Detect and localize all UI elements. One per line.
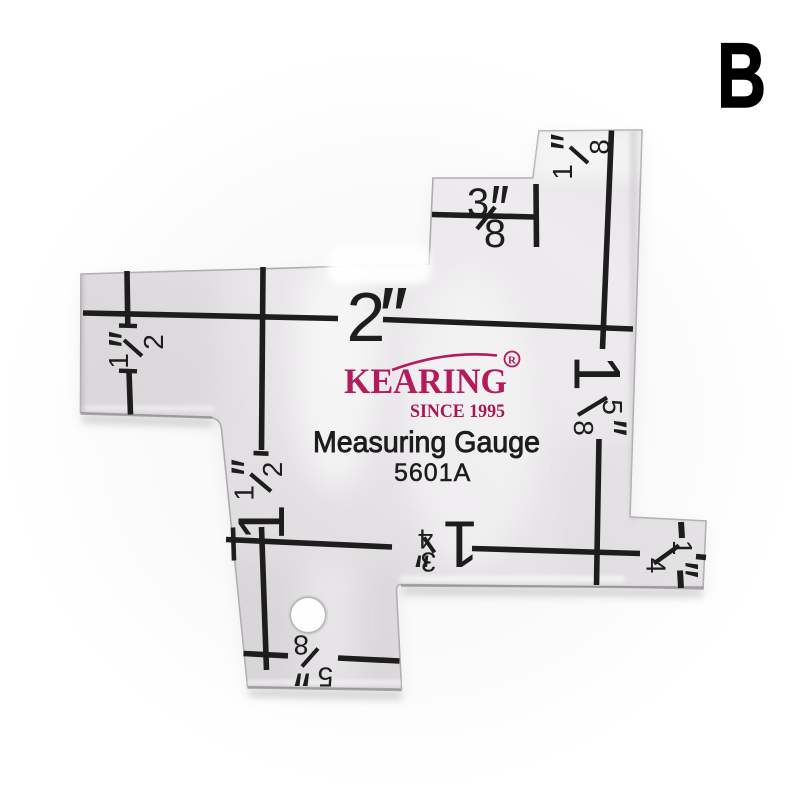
svg-text:2: 2	[257, 462, 288, 478]
svg-text:R: R	[508, 355, 517, 367]
svg-text:4: 4	[418, 524, 434, 555]
svg-text:1: 1	[224, 504, 298, 541]
svg-text:2: 2	[138, 334, 169, 350]
svg-text:1: 1	[561, 355, 635, 392]
svg-text:1: 1	[442, 508, 479, 582]
svg-text:Measuring Gauge: Measuring Gauge	[313, 426, 540, 459]
svg-text:KEARING: KEARING	[344, 361, 507, 401]
svg-text:B: B	[717, 25, 766, 127]
svg-text:1: 1	[103, 353, 134, 369]
svg-text:8: 8	[584, 139, 615, 155]
svg-text:8: 8	[568, 420, 599, 436]
svg-text:8: 8	[484, 212, 506, 256]
svg-text:1: 1	[547, 164, 578, 180]
svg-text:8: 8	[293, 630, 309, 661]
svg-text:5601A: 5601A	[394, 459, 471, 487]
svg-text:SINCE 1995: SINCE 1995	[410, 401, 505, 422]
svg-text:5: 5	[318, 662, 334, 693]
svg-text:2: 2	[347, 278, 386, 356]
svg-text:1: 1	[229, 485, 260, 501]
